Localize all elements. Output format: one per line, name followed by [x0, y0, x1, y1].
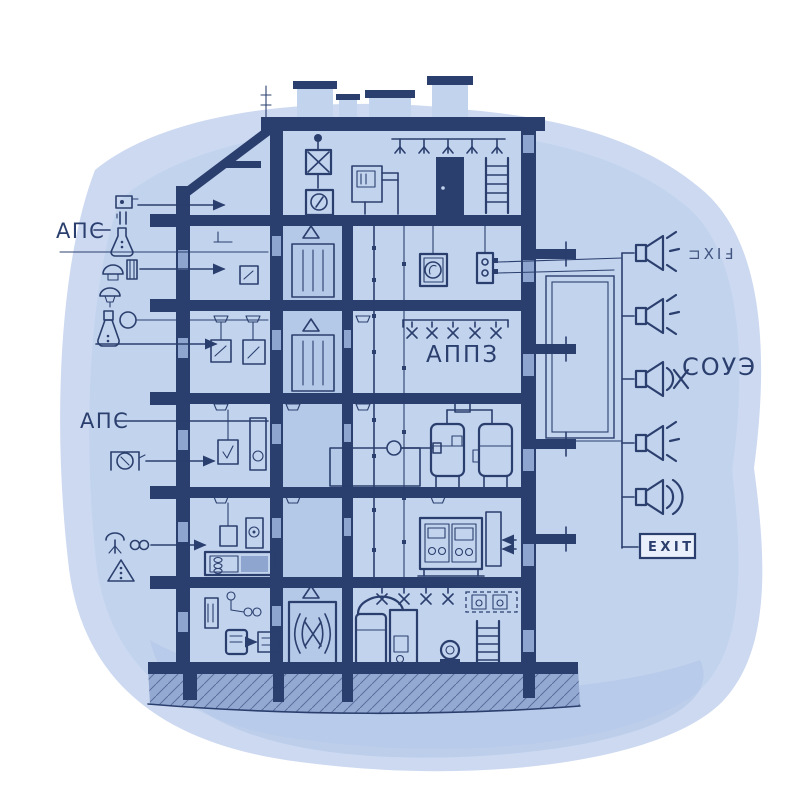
- ground-hatch: [148, 668, 580, 713]
- exit-label: EXIT: [648, 540, 695, 555]
- appz-label: АППЗ: [426, 342, 499, 368]
- aps-label-top: АПС: [56, 219, 105, 243]
- blueprint-canvas: АППЗ: [0, 0, 800, 800]
- exit-sign: EXIT: [640, 534, 695, 558]
- basement-ladder: [477, 621, 499, 667]
- fixe-mirrored-label: ⊐XIℲ: [688, 245, 736, 263]
- building-section-drawing: АППЗ: [0, 0, 800, 800]
- soue-label: СОУЭ: [682, 353, 757, 381]
